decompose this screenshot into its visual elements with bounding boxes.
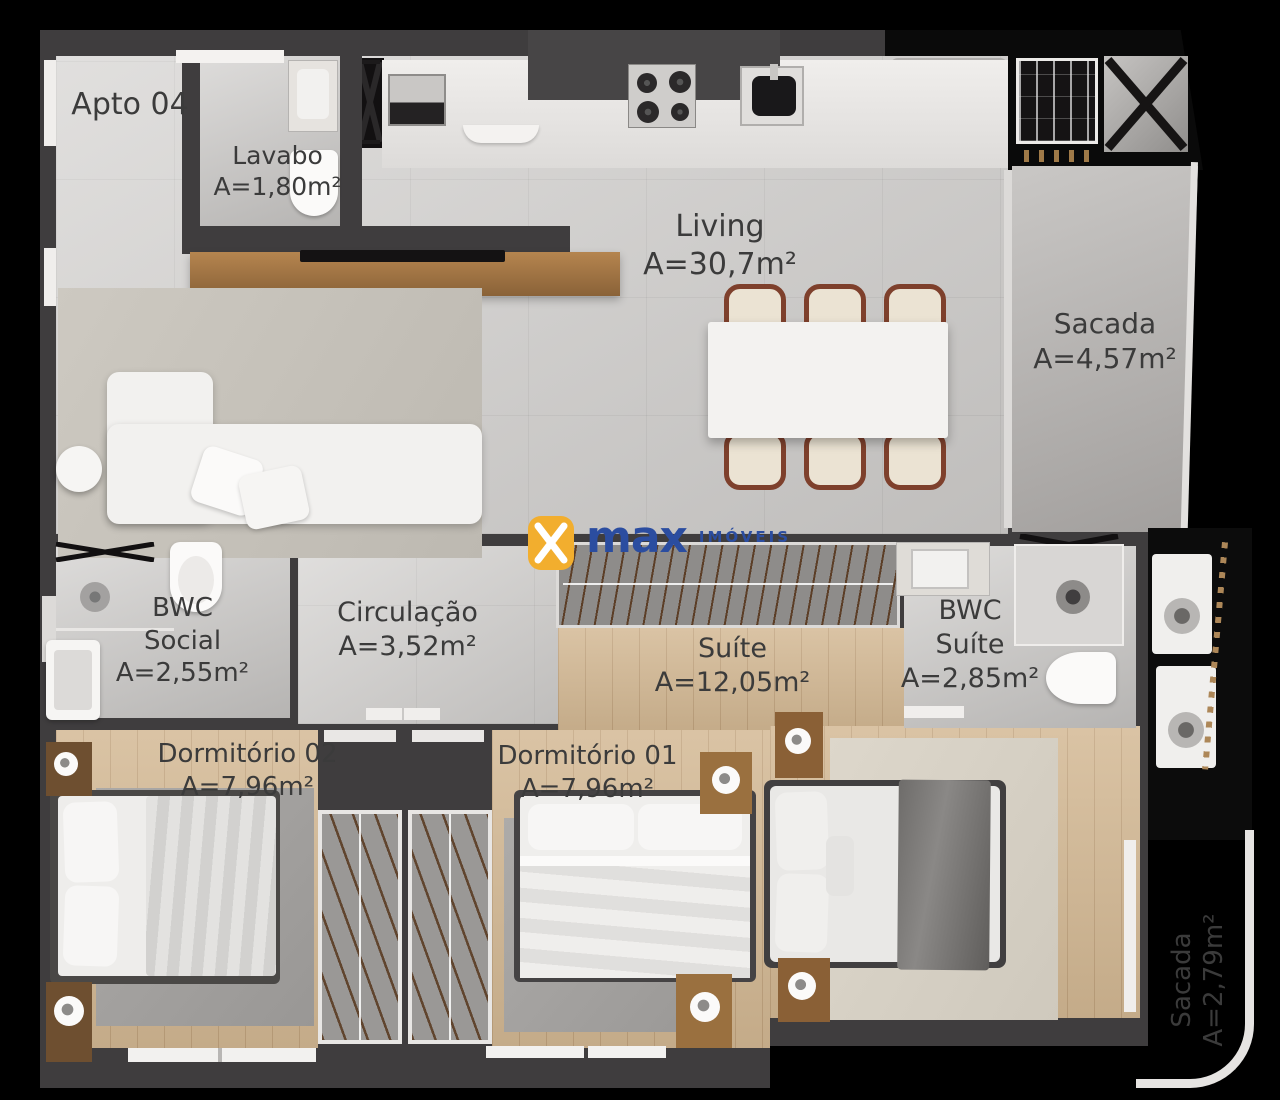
dorm02-lamp-top: [54, 752, 78, 776]
brand-suffix: IMÓVEIS: [699, 528, 791, 546]
wardrobe-dorm01: [408, 810, 492, 1044]
door-jamb-bwc-suite: [904, 706, 964, 718]
room-area: A=7,96m²: [465, 773, 710, 806]
dormitorio-02-label: Dormitório 02 A=7,96m²: [125, 738, 370, 803]
dorm02-window-sill: [128, 1048, 316, 1062]
grid-shaft-pegs: [1024, 150, 1090, 162]
sink-marble-suite: [896, 542, 990, 596]
suite-bottom-void: [770, 1046, 1148, 1090]
suite-lamp-top: [785, 728, 811, 754]
elevator-x-icon: [1104, 56, 1188, 152]
closet-rail: [563, 583, 893, 585]
shower-drain: [1056, 580, 1090, 614]
dining-chair: [724, 430, 786, 490]
sill-divider: [218, 1048, 222, 1062]
dining-table: [708, 322, 948, 438]
unit-label-text: Apto 04: [55, 86, 205, 124]
brand-logo-icon: [528, 516, 574, 570]
living-label: Living A=30,7m²: [610, 208, 830, 283]
room-area: A=2,55m²: [95, 657, 270, 690]
dorm01-vase-top: [712, 766, 740, 794]
room-name: Suíte: [610, 632, 855, 666]
brand-name: max: [586, 516, 687, 560]
window-jamb-left-mid: [44, 248, 56, 306]
bwc-social-label: BWC Social A=2,55m²: [95, 592, 270, 690]
sacada-living-label: Sacada A=4,57m²: [1010, 306, 1200, 376]
dorm01-duvet-fold: [520, 856, 750, 866]
dorm02-blanket: [146, 796, 276, 976]
room-name: Sacada: [1166, 910, 1199, 1050]
room-name: Sacada: [1010, 306, 1200, 341]
pillow: [63, 885, 120, 967]
wardrobe-dorm02: [318, 810, 402, 1044]
shaft-x-bwc-social-icon: [54, 542, 156, 562]
ventilation-grid-shaft: [1016, 58, 1098, 144]
dorm01-window-sill: [588, 1046, 666, 1058]
unit-label: Apto 04: [55, 86, 205, 124]
ac-fan: [1164, 598, 1200, 634]
suite-lamp-bottom: [788, 972, 816, 1000]
sink-faucet: [770, 64, 778, 80]
door-jamb-circulacao: [366, 708, 402, 720]
wardrobe-rail: [359, 814, 361, 1040]
dorm01-vase-bottom: [690, 992, 720, 1022]
room-name: Dormitório 02: [125, 738, 370, 771]
suite-blanket: [897, 780, 991, 971]
burner: [637, 73, 657, 93]
room-name: Lavabo: [195, 140, 360, 171]
lavabo-sink: [288, 60, 338, 132]
sink-basin: [54, 650, 92, 710]
room-name: Suíte: [880, 628, 1060, 662]
sink-basin: [911, 549, 969, 589]
sink-social: [46, 640, 100, 720]
suite-label: Suíte A=12,05m²: [610, 632, 855, 700]
dining-chair: [884, 430, 946, 490]
pillow-small: [826, 836, 854, 896]
ac-unit: [1152, 554, 1212, 654]
dorm02-lamp-bottom: [54, 996, 84, 1026]
sink-basin: [752, 76, 796, 116]
room-area: A=30,7m²: [610, 246, 830, 284]
dorm01-duvet: [520, 862, 750, 978]
sacada-suite-label: Sacada A=2,79m²: [1108, 910, 1280, 1050]
room-name: Dormitório 01: [465, 740, 710, 773]
kitchen-hood-curve: [463, 125, 539, 143]
burner: [669, 71, 691, 93]
pillow: [775, 791, 830, 871]
room-area: A=3,52m²: [285, 630, 530, 664]
side-table-round: [56, 446, 102, 492]
room-area: A=1,80m²: [195, 171, 360, 202]
room-name: Living: [610, 208, 830, 246]
circulacao-label: Circulação A=3,52m²: [285, 596, 530, 664]
room-area: A=7,96m²: [125, 771, 370, 804]
elevator-shaft-box: [1104, 56, 1188, 152]
room-name: BWC: [95, 592, 270, 625]
entry-door-frame: [176, 50, 284, 63]
pillow: [528, 804, 634, 850]
kitchen-sink-left: [388, 74, 446, 126]
room-name: Social: [95, 625, 270, 658]
dorm01-window-sill: [486, 1046, 584, 1058]
room-name: BWC: [880, 594, 1060, 628]
pillow: [63, 801, 120, 883]
floor-plan: Apto 04 Lavabo A=1,80m² Living A=30,7m² …: [0, 0, 1280, 1100]
lavabo-basin: [297, 69, 329, 119]
bwc-suite-label: BWC Suíte A=2,85m²: [880, 594, 1060, 695]
wardrobe-rail: [449, 814, 451, 1040]
room-name: Circulação: [285, 596, 530, 630]
room-area: A=2,85m²: [880, 662, 1060, 696]
room-area: A=2,79m²: [1198, 910, 1231, 1050]
pillow: [775, 873, 830, 953]
brand-watermark: max IMÓVEIS: [528, 516, 791, 570]
burner: [637, 101, 659, 123]
burner: [671, 103, 689, 121]
tv: [300, 250, 505, 262]
dormitorio-01-label: Dormitório 01 A=7,96m²: [465, 740, 710, 805]
lavabo-label: Lavabo A=1,80m²: [195, 140, 360, 203]
kitchen-sink-right: [740, 66, 804, 126]
dining-chair: [804, 430, 866, 490]
door-jamb-circulacao: [404, 708, 440, 720]
cooktop: [628, 64, 696, 128]
ac-fan: [1168, 712, 1204, 748]
room-area: A=12,05m²: [610, 666, 855, 700]
room-area: A=4,57m²: [1010, 341, 1200, 376]
